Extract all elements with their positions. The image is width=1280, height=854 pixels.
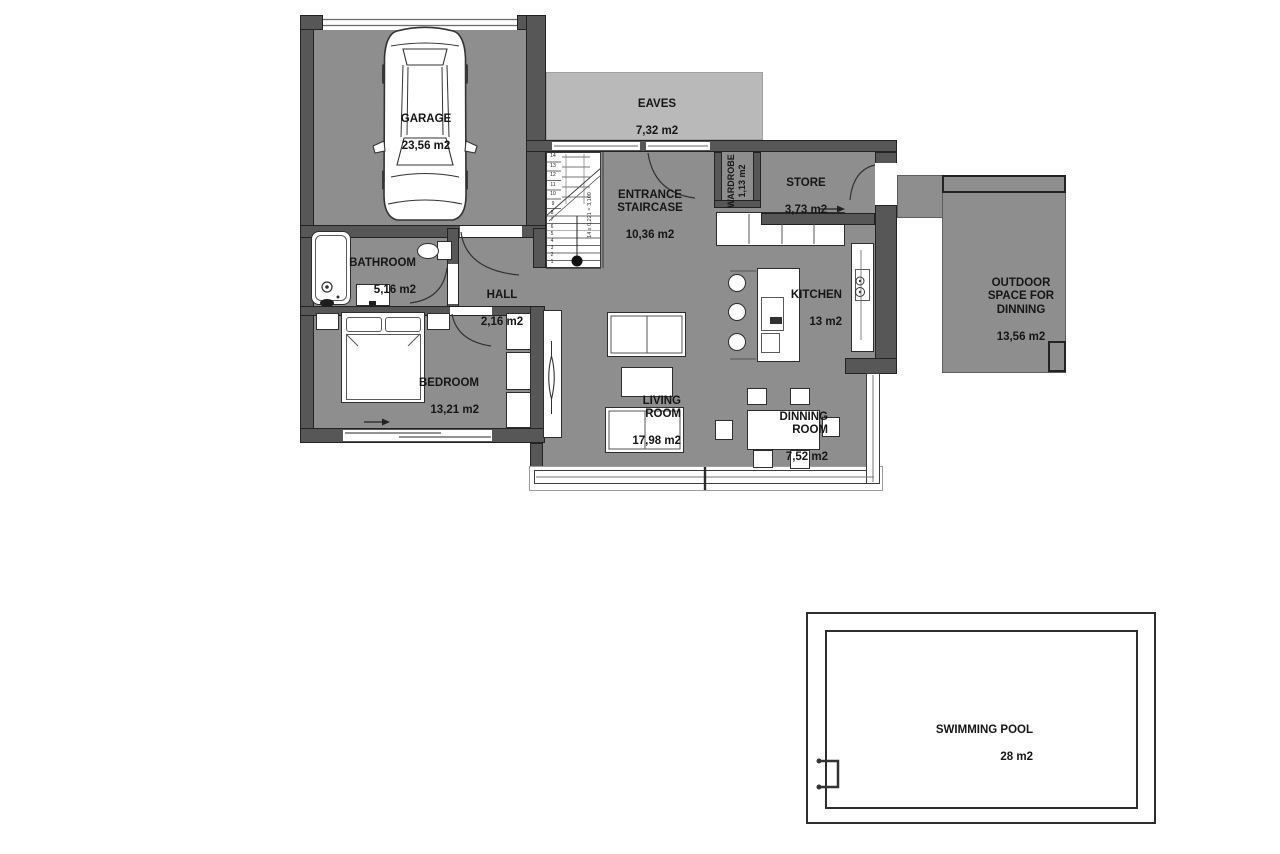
room-name: GARAGE <box>366 113 486 127</box>
wall-store-kitchen-right <box>875 205 897 362</box>
pillow-left <box>346 317 382 332</box>
outdoor-space-arm <box>897 175 943 218</box>
store-door-opening <box>875 163 897 205</box>
room-label-dining: DINNING ROOM 7,52 m2 <box>728 397 828 478</box>
room-name: EAVES <box>597 98 717 112</box>
room-name: WARDROBE <box>726 150 737 212</box>
room-label-store: STORE 3,73 m2 <box>746 163 866 231</box>
room-area: 13,21 m2 <box>379 404 479 418</box>
floor-plan: 14131211109 87654321 14 x 0,221 = 3,100 <box>0 0 1280 854</box>
room-label-eaves: EAVES 7,32 m2 <box>597 84 717 152</box>
pillow-right <box>385 317 421 332</box>
kitchen-counter-right <box>851 243 874 352</box>
room-name: SWIMMING POOL <box>883 724 1033 738</box>
room-area: 28 m2 <box>883 751 1033 765</box>
room-name: LIVING ROOM <box>581 395 681 422</box>
wall-garage-right <box>526 15 546 232</box>
closet-section-2 <box>506 352 531 390</box>
room-label-outdoor: OUTDOOR SPACE FOR DINNING 13,56 m2 <box>966 263 1076 358</box>
nightstand-right <box>427 313 450 330</box>
wall-hall-stair <box>533 228 546 268</box>
room-area: 23,56 m2 <box>366 140 486 154</box>
room-area: 13 m2 <box>740 316 842 330</box>
garage-door-opening <box>323 16 517 29</box>
room-name: KITCHEN <box>740 289 842 303</box>
room-name: OUTDOOR SPACE FOR DINNING <box>966 277 1076 318</box>
room-name: DINNING ROOM <box>728 411 828 438</box>
nightstand-left <box>316 313 339 330</box>
staircase-lower-numbers: 87654321 <box>547 211 557 265</box>
room-area: 7,32 m2 <box>597 125 717 139</box>
wall-garage-top-left <box>300 15 323 30</box>
room-name: ENTRANCE STAIRCASE <box>590 189 710 216</box>
toilet-bowl <box>417 243 439 259</box>
outdoor-bench <box>942 175 1066 193</box>
room-label-living: LIVING ROOM 17,98 m2 <box>581 381 681 462</box>
room-label-pool: SWIMMING POOL 28 m2 <box>883 710 1033 778</box>
room-label-garage: GARAGE 23,56 m2 <box>366 99 486 167</box>
wall-kitchen-bottom-stub <box>845 358 897 374</box>
closet-section-3 <box>506 392 531 428</box>
room-area: 7,52 m2 <box>728 451 828 465</box>
room-area: 17,98 m2 <box>581 435 681 449</box>
kitchen-sink-basin <box>855 269 870 301</box>
room-label-entrance: ENTRANCE STAIRCASE 10,36 m2 <box>590 175 710 256</box>
room-area: 3,73 m2 <box>746 204 866 218</box>
room-label-bedroom: BEDROOM 13,21 m2 <box>379 363 479 431</box>
room-area: 10,36 m2 <box>590 229 710 243</box>
room-name: BEDROOM <box>379 377 479 391</box>
bedroom-window-opening <box>343 430 492 441</box>
room-label-kitchen: KITCHEN 13 m2 <box>740 275 842 343</box>
staircase-upper-numbers: 14131211109 <box>547 154 559 207</box>
room-area: 13,56 m2 <box>966 331 1076 345</box>
hall-door-opening <box>460 226 522 237</box>
room-name: BATHROOM <box>316 257 416 271</box>
sofa-top <box>607 312 686 357</box>
terrace-cut <box>300 443 530 492</box>
room-label-hall: HALL 2,16 m2 <box>452 275 552 343</box>
room-area: 5,16 m2 <box>316 284 416 298</box>
toilet-tank <box>437 241 452 260</box>
glass-wall-right <box>866 373 880 484</box>
room-label-bathroom: BATHROOM 5,16 m2 <box>316 243 416 311</box>
room-name: STORE <box>746 177 866 191</box>
room-area: 2,16 m2 <box>452 316 552 330</box>
room-name: HALL <box>452 289 552 303</box>
